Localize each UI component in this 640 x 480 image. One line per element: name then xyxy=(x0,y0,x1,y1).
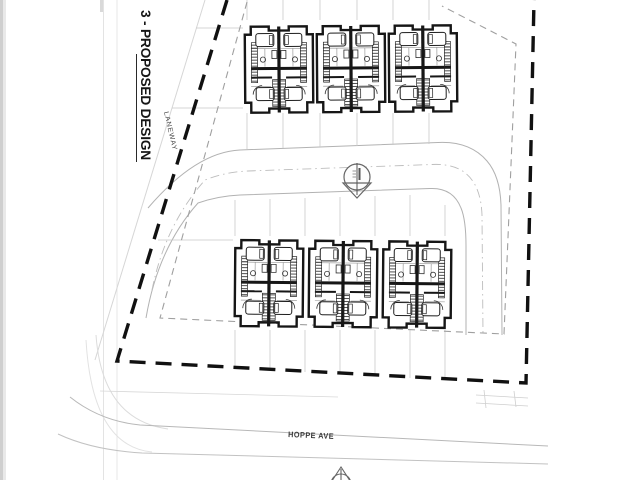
building-block xyxy=(245,26,314,112)
north-arrow-icon xyxy=(343,163,371,198)
building-block xyxy=(309,241,378,328)
street-label: HOPPE AVE xyxy=(288,430,334,441)
page-title-group: 3 - PROPOSED DESIGN xyxy=(137,10,154,162)
survey-marks xyxy=(476,390,528,408)
north-arrow-bottom-icon xyxy=(326,467,356,480)
page-title: 3 - PROPOSED DESIGN xyxy=(138,10,153,160)
building-block xyxy=(235,240,304,327)
hoppe-ave-road xyxy=(58,390,548,464)
building-row-north xyxy=(245,25,458,112)
site-plan-page: 3 - PROPOSED DESIGN LANEWAY HOPPE AVE xyxy=(0,0,640,480)
building-row-south xyxy=(235,240,452,328)
building-block xyxy=(383,241,452,328)
building-block xyxy=(317,26,386,112)
building-block xyxy=(389,25,458,111)
